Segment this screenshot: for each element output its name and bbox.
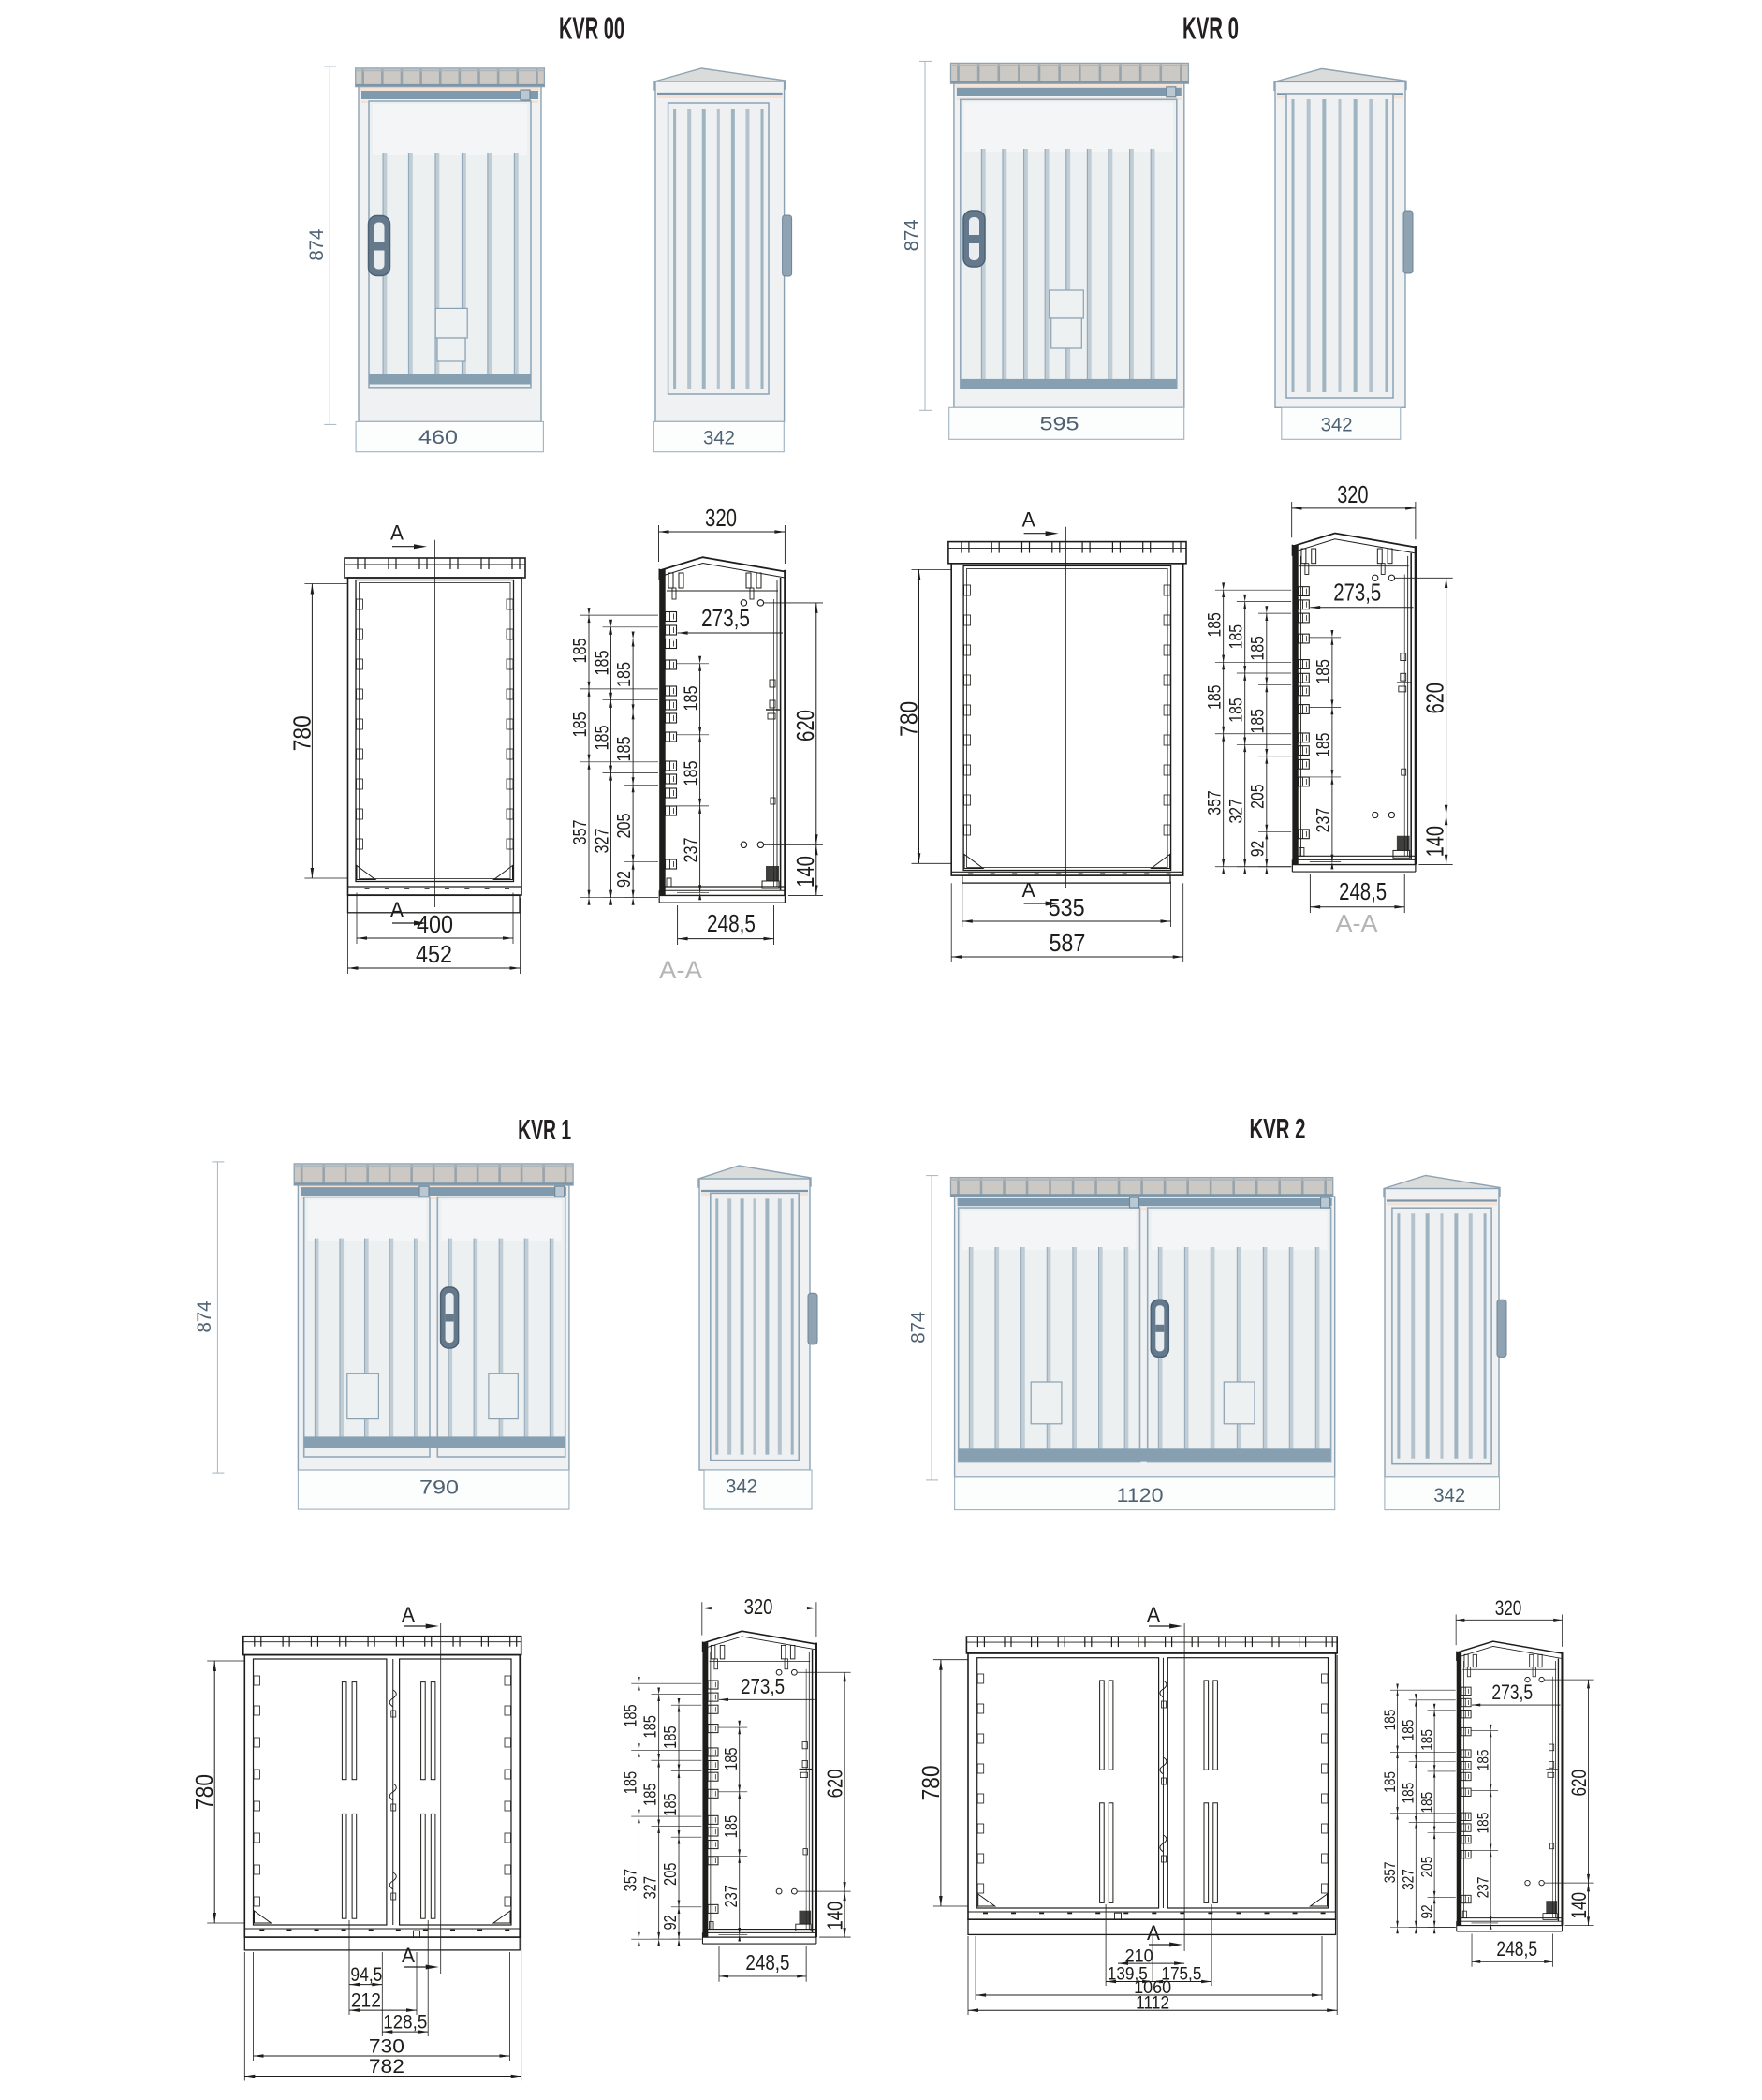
svg-text:185: 185 xyxy=(621,1771,639,1794)
svg-text:185: 185 xyxy=(1381,1771,1399,1793)
svg-text:A: A xyxy=(1147,1921,1160,1945)
svg-text:185: 185 xyxy=(1400,1720,1417,1741)
svg-text:273,5: 273,5 xyxy=(741,1674,785,1698)
svg-text:185: 185 xyxy=(681,761,701,786)
svg-text:452: 452 xyxy=(416,940,452,968)
svg-text:185: 185 xyxy=(570,639,591,664)
svg-text:327: 327 xyxy=(592,829,612,854)
svg-text:874: 874 xyxy=(306,228,328,260)
svg-text:327: 327 xyxy=(1226,799,1247,823)
svg-text:185: 185 xyxy=(1248,709,1269,734)
svg-text:327: 327 xyxy=(1400,1869,1417,1890)
svg-text:92: 92 xyxy=(1417,1904,1435,1918)
svg-text:185: 185 xyxy=(1226,624,1247,650)
svg-text:140: 140 xyxy=(822,1902,846,1931)
svg-text:140: 140 xyxy=(791,856,819,888)
svg-text:780: 780 xyxy=(287,715,316,751)
svg-text:KVR 0: KVR 0 xyxy=(1182,11,1239,46)
svg-text:782: 782 xyxy=(369,2056,404,2078)
svg-text:185: 185 xyxy=(1226,698,1247,723)
svg-text:A: A xyxy=(402,1603,415,1626)
svg-text:320: 320 xyxy=(705,504,737,532)
svg-text:128,5: 128,5 xyxy=(383,2012,427,2034)
svg-text:185: 185 xyxy=(1314,732,1334,757)
svg-text:620: 620 xyxy=(822,1770,846,1799)
svg-text:205: 205 xyxy=(614,814,635,839)
svg-text:780: 780 xyxy=(917,1765,945,1800)
svg-text:205: 205 xyxy=(661,1863,680,1886)
svg-text:140: 140 xyxy=(1423,826,1449,857)
svg-text:185: 185 xyxy=(592,726,612,751)
svg-text:273,5: 273,5 xyxy=(1333,580,1381,607)
svg-text:342: 342 xyxy=(1321,414,1353,436)
svg-text:237: 237 xyxy=(1474,1877,1491,1899)
svg-text:327: 327 xyxy=(641,1876,660,1899)
svg-text:874: 874 xyxy=(902,219,923,251)
svg-text:874: 874 xyxy=(194,1300,215,1332)
svg-text:185: 185 xyxy=(614,662,635,687)
svg-text:185: 185 xyxy=(1400,1783,1417,1804)
svg-text:140: 140 xyxy=(1567,1892,1591,1919)
svg-text:357: 357 xyxy=(621,1869,639,1891)
svg-text:A-A: A-A xyxy=(1336,909,1379,937)
svg-text:1120: 1120 xyxy=(1117,1484,1164,1506)
svg-text:400: 400 xyxy=(417,910,453,938)
svg-text:185: 185 xyxy=(661,1793,680,1815)
svg-text:KVR 2: KVR 2 xyxy=(1250,1112,1306,1145)
svg-text:205: 205 xyxy=(1417,1857,1435,1878)
svg-text:185: 185 xyxy=(641,1783,660,1805)
svg-text:780: 780 xyxy=(894,701,922,737)
svg-text:185: 185 xyxy=(722,1815,741,1838)
svg-text:248,5: 248,5 xyxy=(707,909,756,937)
svg-text:320: 320 xyxy=(1495,1596,1522,1620)
svg-text:185: 185 xyxy=(592,651,612,676)
svg-text:185: 185 xyxy=(1205,684,1226,710)
svg-text:273,5: 273,5 xyxy=(1491,1681,1533,1704)
svg-text:A: A xyxy=(1147,1603,1160,1626)
svg-text:185: 185 xyxy=(661,1726,680,1748)
svg-text:94,5: 94,5 xyxy=(350,1964,382,1986)
svg-text:92: 92 xyxy=(1248,841,1269,858)
svg-text:185: 185 xyxy=(1474,1813,1491,1834)
svg-text:185: 185 xyxy=(641,1715,660,1738)
svg-text:357: 357 xyxy=(1381,1862,1399,1884)
svg-text:357: 357 xyxy=(570,820,591,845)
svg-text:535: 535 xyxy=(1049,893,1085,921)
svg-text:185: 185 xyxy=(1248,636,1269,661)
svg-text:A-A: A-A xyxy=(659,956,702,984)
svg-text:185: 185 xyxy=(614,737,635,762)
svg-text:790: 790 xyxy=(419,1476,459,1499)
svg-text:730: 730 xyxy=(369,2036,404,2058)
svg-text:185: 185 xyxy=(1474,1749,1491,1770)
svg-text:237: 237 xyxy=(681,838,701,863)
svg-text:248,5: 248,5 xyxy=(1496,1937,1537,1960)
svg-text:205: 205 xyxy=(1248,784,1269,809)
svg-text:342: 342 xyxy=(726,1476,757,1498)
svg-text:185: 185 xyxy=(681,686,701,712)
svg-text:248,5: 248,5 xyxy=(745,1950,789,1975)
svg-text:273,5: 273,5 xyxy=(701,604,750,632)
svg-text:185: 185 xyxy=(722,1747,741,1770)
svg-text:620: 620 xyxy=(1423,683,1449,713)
svg-text:587: 587 xyxy=(1049,929,1085,957)
svg-text:342: 342 xyxy=(703,427,735,449)
svg-text:620: 620 xyxy=(1567,1770,1591,1797)
svg-text:A: A xyxy=(390,521,404,545)
svg-text:185: 185 xyxy=(1205,612,1226,638)
svg-text:320: 320 xyxy=(1337,482,1368,508)
svg-text:237: 237 xyxy=(1314,808,1334,832)
svg-text:320: 320 xyxy=(744,1594,773,1619)
svg-text:620: 620 xyxy=(791,710,819,742)
svg-text:874: 874 xyxy=(908,1311,930,1343)
svg-text:92: 92 xyxy=(661,1915,680,1930)
svg-text:A: A xyxy=(390,898,404,921)
svg-text:KVR 00: KVR 00 xyxy=(559,11,624,46)
svg-text:185: 185 xyxy=(1417,1729,1435,1751)
svg-text:357: 357 xyxy=(1205,790,1226,815)
svg-text:1112: 1112 xyxy=(1136,1992,1169,2013)
svg-text:185: 185 xyxy=(570,712,591,738)
svg-text:460: 460 xyxy=(418,426,458,448)
svg-text:92: 92 xyxy=(614,871,635,888)
svg-text:595: 595 xyxy=(1040,413,1079,435)
svg-text:A: A xyxy=(1022,508,1035,532)
svg-text:A: A xyxy=(402,1944,415,1967)
svg-text:212: 212 xyxy=(351,1990,381,2012)
svg-text:KVR 1: KVR 1 xyxy=(518,1113,571,1146)
svg-text:185: 185 xyxy=(1314,659,1334,684)
svg-text:780: 780 xyxy=(190,1774,218,1810)
svg-text:185: 185 xyxy=(1417,1792,1435,1814)
svg-text:A: A xyxy=(1022,878,1035,902)
svg-text:185: 185 xyxy=(621,1704,639,1726)
svg-text:248,5: 248,5 xyxy=(1339,879,1387,905)
svg-text:237: 237 xyxy=(722,1885,741,1907)
svg-text:185: 185 xyxy=(1381,1710,1399,1731)
svg-text:342: 342 xyxy=(1433,1484,1465,1506)
